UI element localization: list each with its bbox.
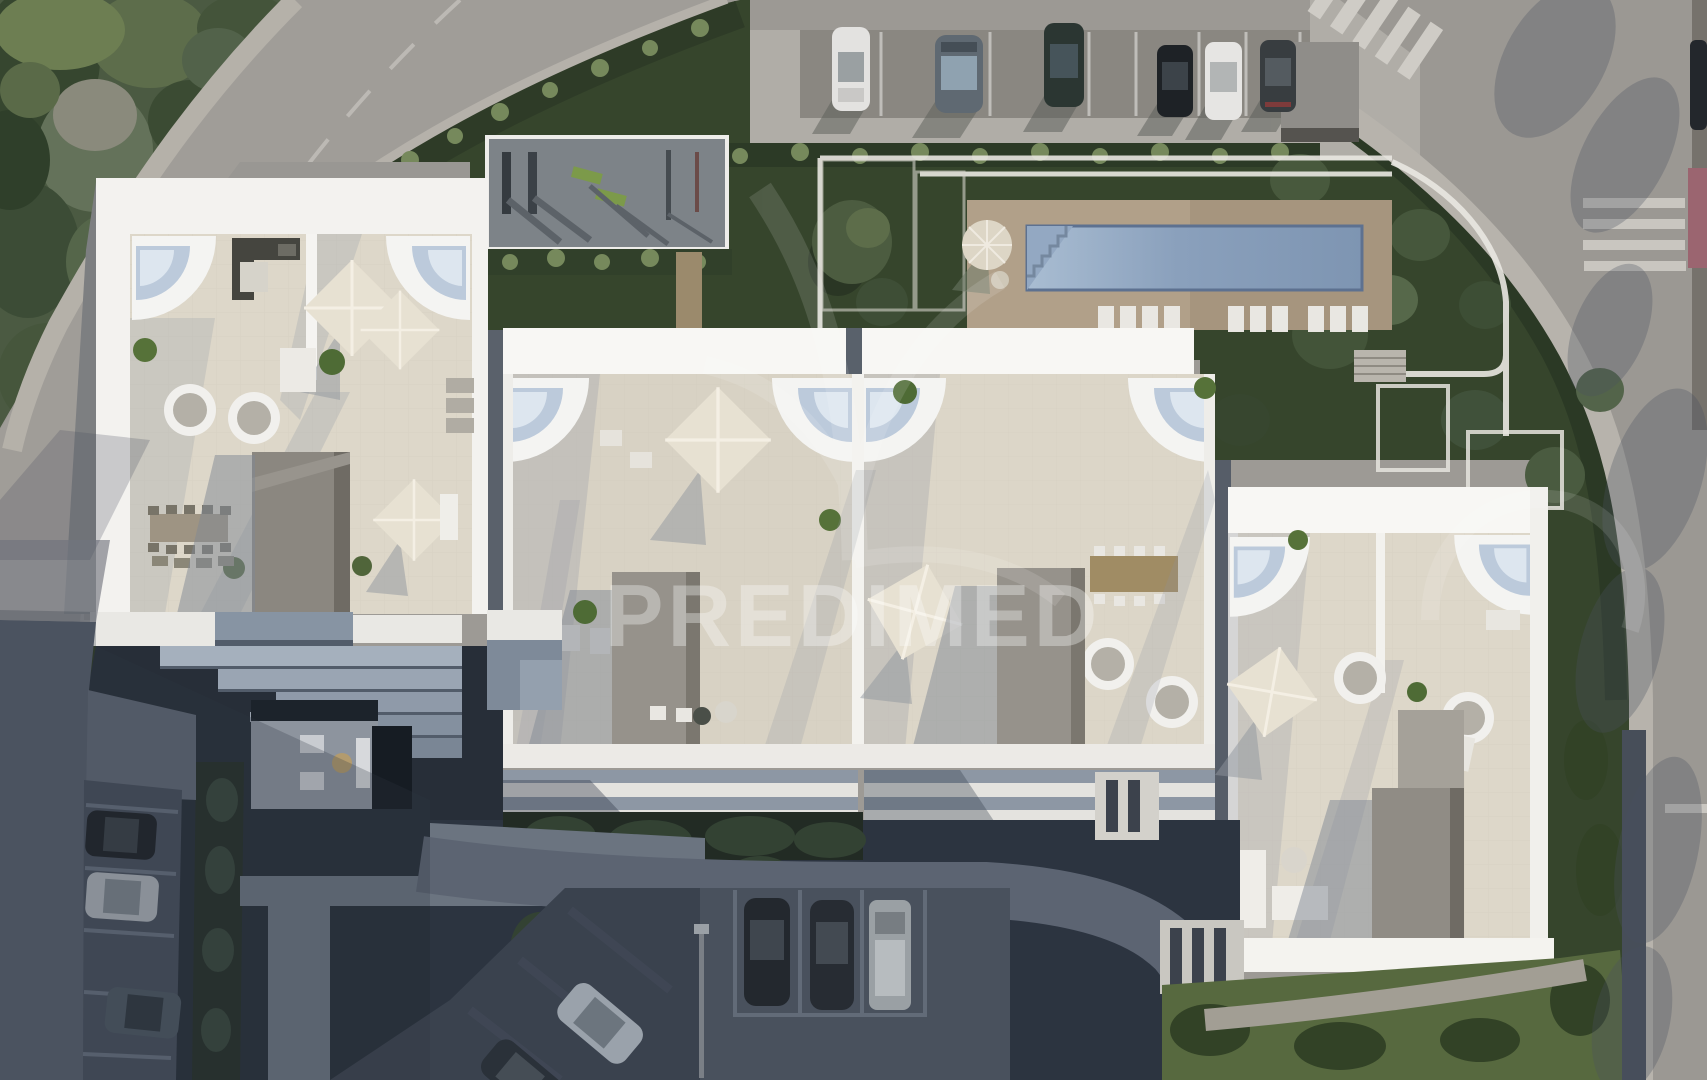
svg-text:PREDIMED: PREDIMED xyxy=(605,566,1102,665)
